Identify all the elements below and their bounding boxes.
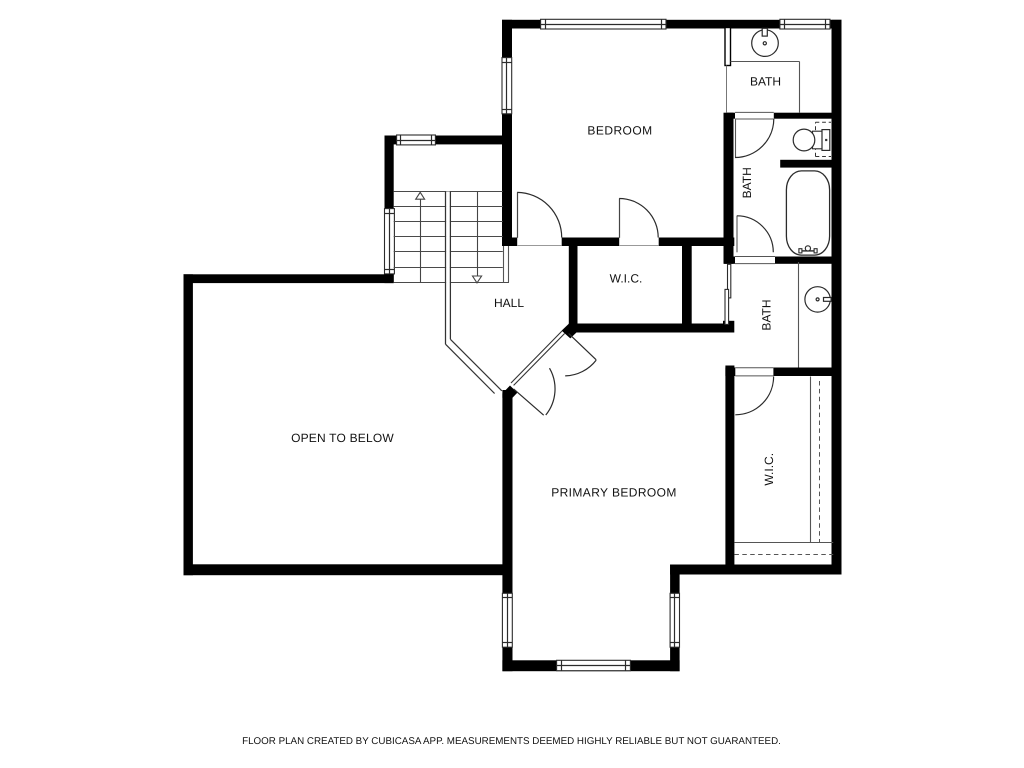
svg-text:BATH: BATH — [750, 74, 781, 88]
svg-text:OPEN TO BELOW: OPEN TO BELOW — [291, 431, 394, 445]
svg-text:PRIMARY BEDROOM: PRIMARY BEDROOM — [551, 486, 677, 500]
svg-text:W.I.C.: W.I.C. — [762, 453, 776, 486]
svg-text:HALL: HALL — [494, 296, 524, 310]
svg-text:BEDROOM: BEDROOM — [587, 123, 652, 137]
svg-text:BATH: BATH — [740, 167, 754, 198]
svg-text:W.I.C.: W.I.C. — [610, 272, 643, 286]
svg-text:FLOOR PLAN CREATED BY CUBICASA: FLOOR PLAN CREATED BY CUBICASA APP. MEAS… — [242, 736, 781, 747]
svg-text:BATH: BATH — [760, 299, 774, 330]
